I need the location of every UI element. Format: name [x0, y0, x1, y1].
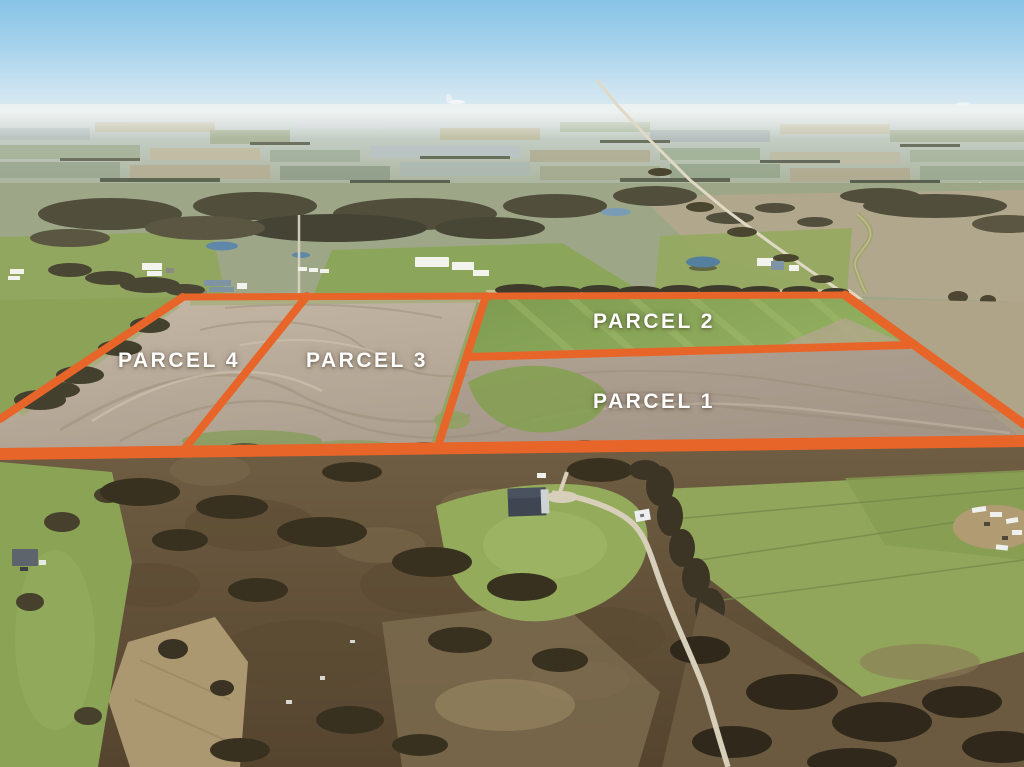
aerial-photo-canvas	[0, 0, 1024, 767]
parcel-4-label: PARCEL 4	[118, 349, 240, 373]
parked-car	[537, 473, 546, 478]
parcel-3-label: PARCEL 3	[306, 349, 428, 373]
parcel-2-label: PARCEL 2	[593, 310, 715, 334]
parcel-1-label: PARCEL 1	[593, 390, 715, 414]
foreground	[0, 441, 1024, 767]
sky	[0, 0, 1024, 130]
boundary-north	[183, 295, 845, 297]
aerial-photo: PARCEL 1 PARCEL 2 PARCEL 3 PARCEL 4	[0, 0, 1024, 767]
house	[508, 487, 550, 516]
